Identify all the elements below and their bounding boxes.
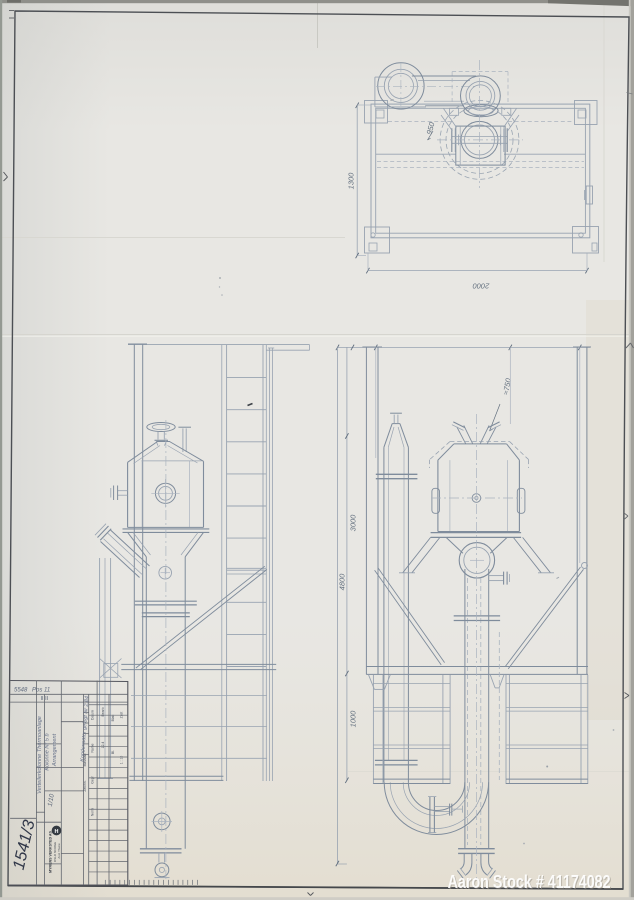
svg-text:Verteilerkolonne Thermoanlage: Verteilerkolonne Thermoanlage (37, 716, 43, 794)
svg-text:1 : 10: 1 : 10 (120, 756, 124, 765)
svg-text:Name: Name (91, 743, 95, 752)
svg-text:1000: 1000 (349, 710, 358, 728)
svg-text:H: H (55, 829, 59, 835)
svg-text:Kolonne Nr 5 b: Kolonne Nr 5 b (45, 733, 51, 770)
svg-text:2000: 2000 (472, 282, 491, 291)
svg-text:Arrangement: Arrangement (52, 733, 58, 767)
svg-text:Masstab: Masstab (83, 753, 87, 766)
svg-text:3000: 3000 (349, 514, 358, 532)
svg-text:Bl.: Bl. (111, 750, 115, 754)
svg-text:Norm: Norm (91, 808, 95, 816)
svg-text:Aaron Stock # 41174082: Aaron Stock # 41174082 (448, 871, 611, 892)
svg-text:5548: 5548 (14, 688, 28, 694)
svg-text:Pos 11: Pos 11 (32, 688, 50, 694)
svg-text:Zust: Zust (120, 712, 124, 719)
svg-text:12.4: 12.4 (101, 742, 105, 749)
svg-text:4800: 4800 (338, 573, 347, 591)
svg-text:Zeichn.: Zeichn. (83, 780, 87, 791)
svg-text:Blatt: Blatt (111, 715, 115, 722)
svg-text:Bearb: Bearb (101, 707, 105, 716)
svg-text:Datum: Datum (91, 710, 95, 720)
svg-text:Avd. Thune: Avd. Thune (57, 843, 61, 859)
svg-text:1300: 1300 (347, 172, 356, 190)
svg-text:Gepr: Gepr (91, 775, 95, 783)
svg-text:II II: II II (41, 696, 49, 702)
